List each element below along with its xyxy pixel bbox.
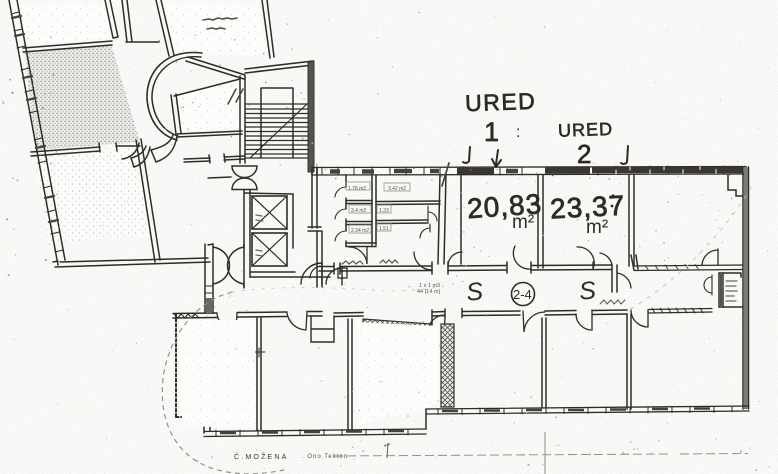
svg-text:m²: m²: [512, 212, 534, 233]
svg-text:1.51: 1.51: [379, 226, 389, 232]
svg-text:3.4 m2: 3.4 m2: [351, 208, 367, 214]
svg-text:. Ono Tekton: . Ono Tekton: [302, 454, 348, 460]
svg-text:Č.MOŽENA: Č.MOŽENA: [234, 452, 289, 461]
svg-text:2.34 m2: 2.34 m2: [351, 228, 369, 234]
svg-text:URED: URED: [558, 119, 614, 141]
svg-text:2-4.: 2-4.: [513, 287, 535, 302]
svg-text:2: 2: [577, 139, 591, 169]
svg-text:1: 1: [484, 117, 499, 147]
svg-text:3.42 m2: 3.42 m2: [388, 186, 406, 192]
svg-text:m²: m²: [586, 217, 608, 238]
svg-text:URED: URED: [465, 88, 537, 116]
svg-text:1.76 m2: 1.76 m2: [348, 186, 366, 192]
svg-text:1.33: 1.33: [379, 208, 389, 214]
svg-text::: :: [516, 124, 520, 141]
svg-text:44 [14 m]: 44 [14 m]: [417, 289, 440, 295]
svg-text:S: S: [465, 277, 485, 307]
